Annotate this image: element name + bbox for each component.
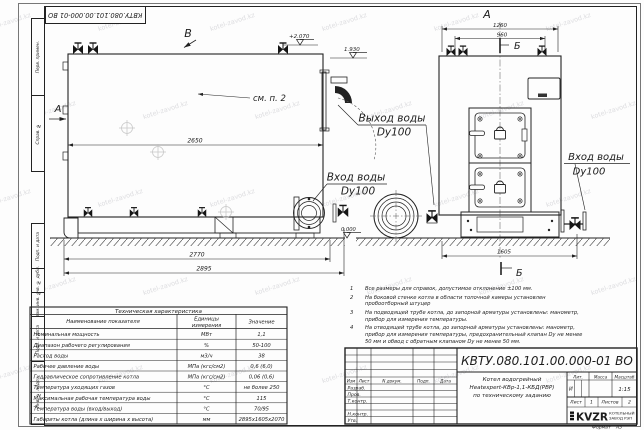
note-number: 4 <box>347 325 360 346</box>
product-title-line1: Котел водогрейный <box>483 377 542 383</box>
spec-row-unit: мм <box>203 417 211 423</box>
water-inlet-dn-side: Dy100 <box>341 186 376 198</box>
note-text: На отводящей трубе котла, до запорной ар… <box>365 325 584 346</box>
note-number: 3 <box>347 310 360 324</box>
water-outlet-dn: Dy100 <box>377 127 412 139</box>
level-outlet: 1.930 <box>344 47 360 53</box>
door-handle <box>470 131 485 136</box>
spec-row-unit: МВт <box>201 332 213 338</box>
spec-row-unit: МПа (кгс/см2) <box>188 375 226 381</box>
dim-front-width: 1260 <box>493 23 507 29</box>
format-label: Формат <box>592 425 611 430</box>
col-podp: Подп. <box>417 378 430 383</box>
front-inlet-stub <box>561 210 586 232</box>
spec-row-name: Гидравлическое сопротивление котла <box>34 375 140 381</box>
sheets-value: 2 <box>628 400 631 406</box>
side-view-valves <box>73 43 348 217</box>
row-razrab: Разраб. <box>348 385 366 391</box>
doc-number: КВТУ.080.101.00.000-01 ВО <box>461 354 633 368</box>
spec-col-unit: Единицы <box>194 317 219 323</box>
spec-row-value: 2895х1605х2070 <box>239 417 285 423</box>
water-inlet-label-side: Вход воды <box>327 172 386 184</box>
spec-row-unit: °С <box>203 385 210 391</box>
side-view <box>63 54 376 238</box>
title-block-text: КВТУ.080.101.00.000-01 ВО Изм Лист N док… <box>347 354 635 424</box>
skid-foot <box>220 233 236 238</box>
col-ndoc: N докум. <box>382 378 401 383</box>
dim-front-overall: 1605 <box>497 250 511 256</box>
mass-label: Масса <box>594 374 608 379</box>
notes-block: 1 Все размеры для справок, допустимое от… <box>347 286 584 348</box>
front-view <box>439 22 586 258</box>
logo-kvzr: KVZR <box>576 412 608 424</box>
front-view-title-A: А <box>482 8 491 21</box>
note-item: 1 Все размеры для справок, допустимое от… <box>347 286 584 293</box>
dim-side-overall: 2895 <box>196 266 211 273</box>
sheet-label: Лист <box>569 400 582 406</box>
note-text: На подводящей трубе котла, до запорной а… <box>365 310 584 324</box>
drawing-canvas: 2650 2770 2895 1260 960 1605 +2.070 1.93… <box>0 0 644 430</box>
drawing-sheet: kotel-zavod.kzkotel-zavod.kzkotel-zavod.… <box>0 0 644 430</box>
lower-door <box>469 163 531 212</box>
front-plinth <box>461 212 559 237</box>
spec-row-unit: % <box>204 343 209 349</box>
callouts: см. п. 2 Выход воды Dy100 Вход воды Dy10… <box>198 94 630 210</box>
side-view-arrow-A: А <box>54 104 62 115</box>
boiler-body-side <box>68 54 323 217</box>
section-mark-B-top: Б <box>514 41 521 52</box>
see-note-callout: см. п. 2 <box>253 94 286 104</box>
spec-col-name: Наименование показателя <box>66 319 139 325</box>
door-handle <box>470 185 485 190</box>
spec-row-value: 1,1 <box>257 332 265 338</box>
row-prov: Пров. <box>348 392 361 398</box>
spec-row-unit: м3/ч <box>200 353 212 359</box>
sheets-label: Листов <box>600 400 618 406</box>
col-data: Дата <box>439 378 451 383</box>
spec-row-name: Максимальная рабочая температура воды <box>34 396 151 402</box>
level-ground: 0.000 <box>341 227 357 233</box>
section-mark-B-bottom: Б <box>516 268 523 279</box>
col-list: Лист <box>358 378 370 383</box>
crosshair-marks <box>119 120 234 220</box>
water-inlet-label-front: Вход воды <box>568 152 624 163</box>
note-number: 2 <box>347 295 360 309</box>
spec-row-unit: °С <box>203 396 210 402</box>
spec-row-name: Расход воды <box>34 353 69 359</box>
spec-row-name: Номинальная мощность <box>34 332 100 338</box>
spec-table-title: Техническая характеристика <box>115 309 203 315</box>
skid-left-foot <box>64 218 78 238</box>
spec-row-unit: МПа (кгс/см2) <box>188 364 226 370</box>
dim-front-inner: 960 <box>497 32 508 38</box>
note-text: Все размеры для справок, допустимое откл… <box>365 286 584 293</box>
note-number: 1 <box>347 286 360 293</box>
company-logo: KVZR <box>570 412 608 424</box>
note-text: На боковой стенке котла в области топочн… <box>365 295 584 309</box>
spec-col-unit: измерения <box>192 323 222 329</box>
elevation-marks: +2.070 1.930 0.000 <box>283 34 367 238</box>
lit-label: Лит. <box>572 374 583 379</box>
scale-label: Масштаб <box>615 374 635 379</box>
spec-row-value: 38 <box>258 353 265 359</box>
water-outlet-label: Выход воды <box>359 113 426 125</box>
format-note: Формат А3 <box>592 425 622 430</box>
side-bracket <box>63 152 68 160</box>
note-item: 4 На отводящей трубе котла, до запорной … <box>347 325 584 346</box>
product-title-line3: по техническому заданию <box>473 393 551 399</box>
skid-foot <box>296 233 314 238</box>
spec-table-text: Техническая характеристика Наименование … <box>33 309 286 423</box>
product-title-line2: Heatexpert-КВр-1,1-КБД(РВР) <box>470 385 555 391</box>
spec-row-name: Рабочее давление воды <box>34 364 100 370</box>
company-line2: ЗАВОД РЭП <box>609 416 632 421</box>
sheet-value: 1 <box>590 400 593 406</box>
scale-value: 1:15 <box>618 387 631 393</box>
level-top: +2.070 <box>289 34 310 40</box>
format-value: А3 <box>615 425 622 430</box>
col-izm: Изм <box>347 378 356 383</box>
side-bracket <box>63 62 68 70</box>
row-tkontr: Т.контр. <box>348 398 368 404</box>
spec-row-name: Диапазон рабочего регулирования <box>33 343 130 349</box>
spec-row-value: 0,6 (6,0) <box>250 364 272 370</box>
row-utv: Утв. <box>348 418 358 424</box>
spec-col-value: Значение <box>248 320 274 326</box>
spec-row-value: 0,06 (0,6) <box>249 375 275 381</box>
side-bracket <box>63 106 68 114</box>
row-nkontr: Н.контр. <box>348 411 369 417</box>
note-item: 3 На подводящей трубе котла, до запорной… <box>347 310 584 324</box>
spec-row-value: 115 <box>257 396 268 402</box>
panel-slot <box>538 94 547 98</box>
spec-row-value: 70/95 <box>254 406 270 412</box>
boiler-skid <box>78 217 320 233</box>
spec-row-unit: °С <box>203 406 210 412</box>
dim-side-base: 2770 <box>189 252 204 259</box>
spec-row-value: 50-100 <box>252 343 271 349</box>
front-view-valves <box>447 46 581 230</box>
spec-row-value: не более 250 <box>244 385 281 391</box>
spec-row-name: Габариты котла (длина х ширина х высота) <box>34 417 154 423</box>
spec-row-name: Температура уходящих газов <box>34 385 115 391</box>
fan-side-valve <box>427 211 438 223</box>
spec-row-name: Температура воды (вход/выход) <box>34 406 123 412</box>
view-arrow-B: В <box>184 27 192 40</box>
note-item: 2 На боковой стенке котла в области топо… <box>347 295 584 309</box>
dim-side-length: 2650 <box>187 138 202 145</box>
valve-flange <box>333 204 336 222</box>
lit-value: И <box>569 387 573 393</box>
